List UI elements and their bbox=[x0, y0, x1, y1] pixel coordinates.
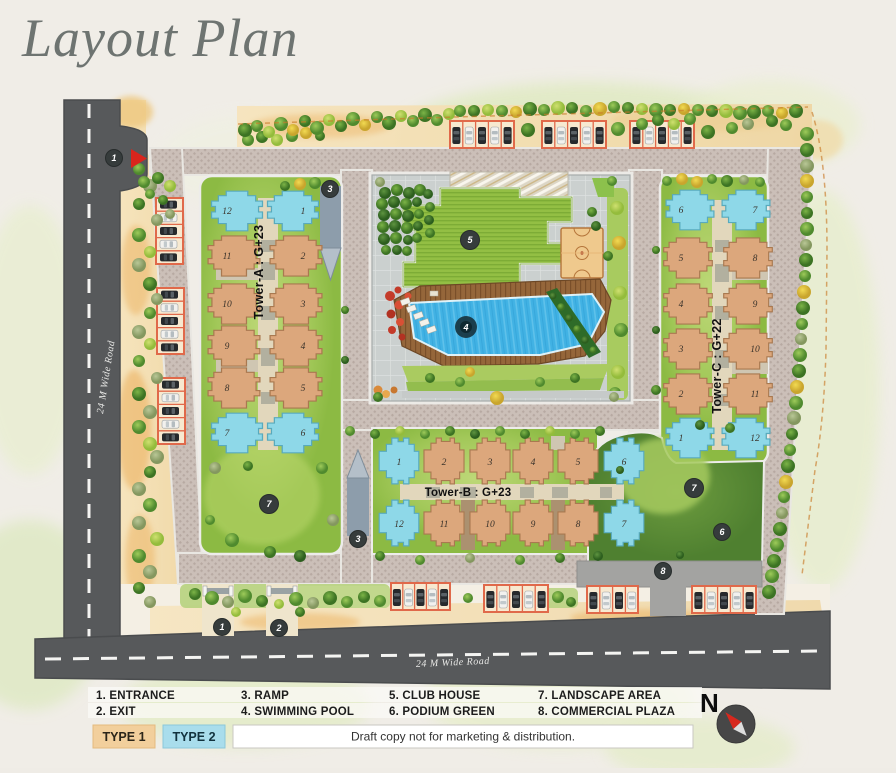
svg-text:6: 6 bbox=[679, 206, 684, 216]
svg-text:5. CLUB HOUSE: 5. CLUB HOUSE bbox=[389, 690, 481, 702]
svg-text:Tower-B : G+23: Tower-B : G+23 bbox=[425, 487, 512, 499]
svg-text:TYPE 1: TYPE 1 bbox=[102, 730, 145, 744]
svg-text:4. SWIMMING POOL: 4. SWIMMING POOL bbox=[241, 706, 354, 718]
svg-text:Draft copy not for marketing &: Draft copy not for marketing & distribut… bbox=[351, 730, 575, 744]
svg-text:12: 12 bbox=[750, 434, 760, 444]
svg-text:2: 2 bbox=[442, 458, 447, 468]
svg-text:2: 2 bbox=[275, 623, 281, 633]
svg-text:4: 4 bbox=[531, 458, 536, 468]
svg-text:4: 4 bbox=[462, 323, 468, 333]
svg-text:3: 3 bbox=[487, 458, 493, 468]
svg-text:Tower-A : G+23: Tower-A : G+23 bbox=[252, 225, 266, 320]
svg-text:8: 8 bbox=[660, 566, 665, 576]
svg-text:8: 8 bbox=[225, 384, 230, 394]
svg-text:1: 1 bbox=[679, 434, 684, 444]
svg-text:3: 3 bbox=[300, 300, 306, 310]
svg-text:4: 4 bbox=[679, 300, 684, 310]
svg-text:4: 4 bbox=[301, 342, 306, 352]
svg-text:N: N bbox=[700, 688, 719, 718]
svg-text:8: 8 bbox=[753, 254, 758, 264]
svg-text:3: 3 bbox=[355, 534, 360, 544]
svg-text:6. PODIUM GREEN: 6. PODIUM GREEN bbox=[389, 706, 495, 718]
svg-text:6: 6 bbox=[622, 458, 627, 468]
svg-text:5: 5 bbox=[576, 458, 581, 468]
svg-text:11: 11 bbox=[751, 390, 760, 400]
svg-text:5: 5 bbox=[679, 254, 684, 264]
svg-text:12: 12 bbox=[394, 520, 404, 530]
svg-text:10: 10 bbox=[485, 520, 495, 530]
svg-text:1: 1 bbox=[301, 207, 306, 217]
svg-text:1. ENTRANCE: 1. ENTRANCE bbox=[96, 690, 175, 702]
svg-text:9: 9 bbox=[225, 342, 230, 352]
svg-text:7. LANDSCAPE AREA: 7. LANDSCAPE AREA bbox=[538, 690, 661, 702]
svg-text:1: 1 bbox=[397, 458, 402, 468]
svg-text:6: 6 bbox=[301, 429, 306, 439]
svg-text:3. RAMP: 3. RAMP bbox=[241, 690, 289, 702]
svg-text:TYPE 2: TYPE 2 bbox=[172, 730, 215, 744]
svg-text:9: 9 bbox=[531, 520, 536, 530]
svg-text:1: 1 bbox=[111, 153, 116, 163]
svg-text:11: 11 bbox=[440, 520, 449, 530]
svg-text:10: 10 bbox=[750, 345, 760, 355]
svg-text:11: 11 bbox=[223, 252, 232, 262]
svg-text:2. EXIT: 2. EXIT bbox=[96, 706, 136, 718]
svg-text:3: 3 bbox=[327, 184, 332, 194]
svg-text:1: 1 bbox=[219, 622, 224, 632]
svg-text:2: 2 bbox=[301, 252, 306, 262]
svg-text:8. COMMERCIAL PLAZA: 8. COMMERCIAL PLAZA bbox=[538, 706, 675, 718]
svg-text:9: 9 bbox=[753, 300, 758, 310]
svg-text:Layout Plan: Layout Plan bbox=[21, 8, 299, 68]
svg-text:8: 8 bbox=[576, 520, 581, 530]
svg-text:10: 10 bbox=[222, 300, 232, 310]
svg-text:2: 2 bbox=[679, 390, 684, 400]
svg-text:3: 3 bbox=[678, 345, 684, 355]
svg-text:Tower-C : G+22: Tower-C : G+22 bbox=[710, 318, 724, 413]
svg-text:5: 5 bbox=[301, 384, 306, 394]
svg-text:12: 12 bbox=[222, 207, 232, 217]
